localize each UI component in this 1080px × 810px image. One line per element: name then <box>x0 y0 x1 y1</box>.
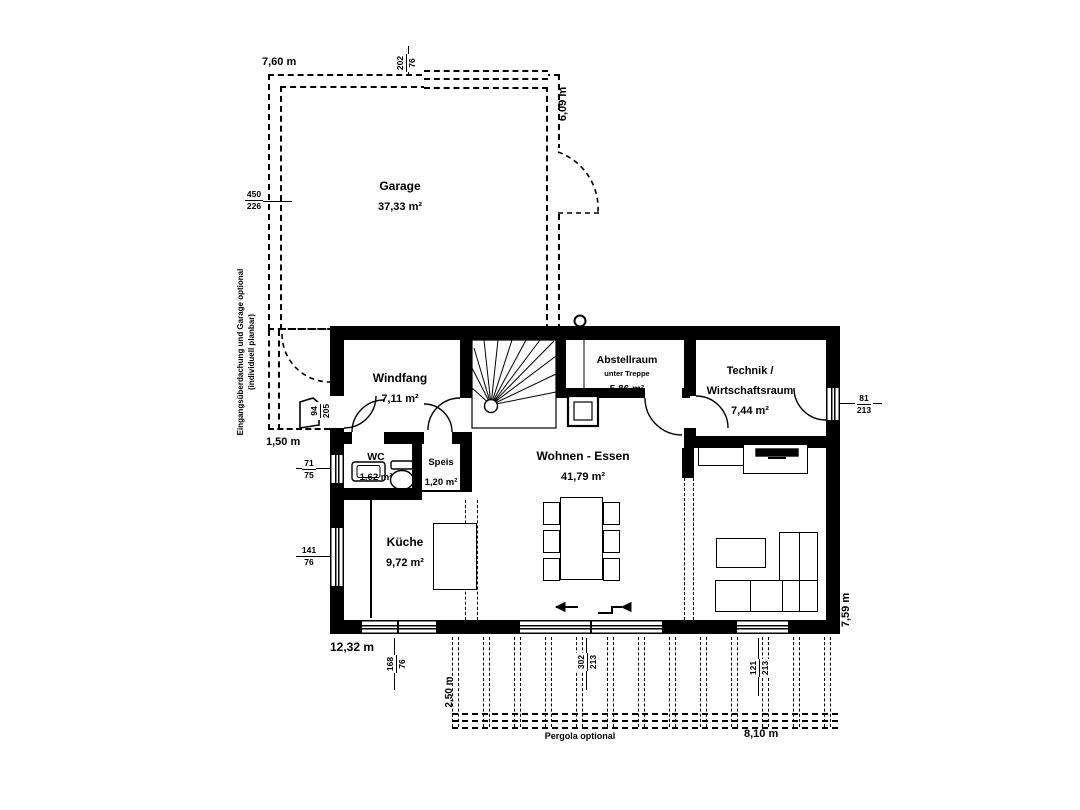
door-technik-81 <box>826 388 840 420</box>
pergola-depth-dim: 2,50 m <box>443 662 455 722</box>
wall <box>788 620 840 634</box>
wc-window-dim: 7175 <box>294 455 324 483</box>
garage-door-dim: 450226 <box>236 186 272 214</box>
coffee-table <box>716 538 766 568</box>
room-area: 5,86 m² <box>610 384 644 395</box>
wall <box>662 620 737 634</box>
dim-fraction: 7175 <box>302 458 315 479</box>
entry-canopy-bottom <box>268 428 330 433</box>
wall <box>436 620 520 634</box>
garage-width-dim: 7,60 m <box>262 56 296 68</box>
dim-text: 6,09 m <box>557 87 569 121</box>
sideboard <box>698 447 744 466</box>
room-area: 9,72 m² <box>386 557 424 569</box>
wall <box>682 448 694 478</box>
room-area: 7,11 m² <box>381 393 418 405</box>
entry-width-dim: 1,50 m <box>266 436 300 448</box>
wall <box>826 340 840 388</box>
entry-note-line1: Eingangsüberdachung und Garage optional <box>236 269 245 436</box>
room-name: Speis <box>428 457 453 468</box>
room-name: Wohnen - Essen <box>536 449 629 463</box>
chair <box>543 558 560 581</box>
dim-fraction: 450226 <box>245 189 263 210</box>
room-area: 41,79 m² <box>561 471 605 483</box>
chair <box>603 558 620 581</box>
sofa <box>715 580 818 612</box>
abstellraum-door-arc <box>645 398 682 435</box>
pergola-ground-line <box>452 727 838 731</box>
abstellraum-label: Abstellraum unter Treppe 5,86 m² <box>584 349 670 398</box>
window-kueche-141 <box>330 528 344 586</box>
garage-side-opening <box>550 148 578 212</box>
wall <box>330 620 362 634</box>
wall <box>826 420 840 634</box>
room-name: Technik / <box>727 365 774 377</box>
speis-door-arc <box>424 404 452 432</box>
windfang-label: Windfang 7,11 m² <box>340 368 460 408</box>
dining-table <box>560 497 603 580</box>
dim-fraction: 81213 <box>855 393 873 414</box>
sofa-seam <box>750 581 751 611</box>
wall <box>330 432 352 444</box>
house-width-dim: 12,32 m <box>330 640 374 654</box>
room-area: 37,33 m² <box>378 201 422 213</box>
chair <box>603 530 620 553</box>
window-mullion <box>590 621 592 633</box>
living-open-divider <box>684 478 694 620</box>
garage-window <box>424 70 548 89</box>
room-name: Garage <box>379 179 420 193</box>
dim-text: 7,59 m <box>840 593 852 627</box>
room-name: Windfang <box>373 371 428 385</box>
room-name: Wirtschaftsraum <box>707 385 794 397</box>
pergola-label: Pergola optional <box>520 731 640 742</box>
window-wc-71 <box>330 455 344 483</box>
entry-note-line2: (individuell planbar) <box>247 314 256 390</box>
garage-depth-dim: 6,09 m <box>556 69 570 139</box>
room-area: 7,44 m² <box>731 405 769 417</box>
chair <box>543 502 560 525</box>
wohnen-label: Wohnen - Essen 41,79 m² <box>520 446 646 486</box>
room-area: 1,62 m² <box>360 472 393 483</box>
dim-fraction: 302213 <box>576 653 597 671</box>
chair <box>543 530 560 553</box>
wall <box>330 326 840 340</box>
sofa-seam <box>782 581 783 611</box>
entry-canopy-arc <box>282 334 330 382</box>
chair <box>603 502 620 525</box>
sofa-seam <box>799 533 800 611</box>
dim-fraction: 16876 <box>385 655 406 673</box>
wc-label: WC 1,62 m² <box>346 446 406 486</box>
wall <box>684 340 696 396</box>
technik-label: Technik / Wirtschaftsraum 7,44 m² <box>698 360 802 420</box>
room-area: 1,20 m² <box>425 477 458 488</box>
garage-window-dim: 20276 <box>393 48 419 78</box>
sliding-door-arrows <box>556 603 631 614</box>
garage-label: Garage 37,33 m² <box>340 176 460 216</box>
room-name: WC <box>367 451 385 463</box>
entry-door-dim: 94205 <box>307 396 333 426</box>
window-living-121 <box>737 620 788 634</box>
wall <box>452 432 472 444</box>
staircase <box>472 340 584 428</box>
kueche-label: Küche 9,72 m² <box>360 532 450 572</box>
kueche-window-dim: 14176 <box>294 542 324 570</box>
pergola-width-dim: 8,10 m <box>744 728 778 740</box>
floor-plan: Garage 37,33 m² 7,60 m 6,09 m 20276 4502… <box>0 0 1080 810</box>
dim-fraction: 14176 <box>300 545 318 566</box>
wall <box>460 340 472 398</box>
pergola-beam <box>452 713 838 722</box>
dim-text: 2,50 m <box>444 676 455 707</box>
dim-fraction: 20276 <box>395 54 416 72</box>
room-name: Küche <box>387 535 424 549</box>
speis-label: Speis 1,20 m² <box>418 451 464 491</box>
entry-note: Eingangsüberdachung und Garage optional … <box>236 252 258 452</box>
dim-fraction: 94205 <box>309 402 330 420</box>
bottom-window-dim: 16876 <box>383 649 409 679</box>
house-depth-dim: 7,59 m <box>839 575 853 645</box>
room-name: Abstellraum <box>597 354 658 366</box>
terrace-door-dim: 302213 <box>574 647 600 677</box>
entry-canopy-outline <box>268 330 280 430</box>
living-window-dim: 121213 <box>746 653 772 683</box>
wall <box>384 432 424 444</box>
room-sub: unter Treppe <box>584 369 670 378</box>
window-mullion <box>397 621 399 633</box>
tv-board <box>743 444 808 474</box>
wall <box>330 488 422 500</box>
window-bottom-168 <box>362 620 436 634</box>
technik-door-dim: 81213 <box>846 390 882 418</box>
dim-fraction: 121213 <box>748 659 769 677</box>
